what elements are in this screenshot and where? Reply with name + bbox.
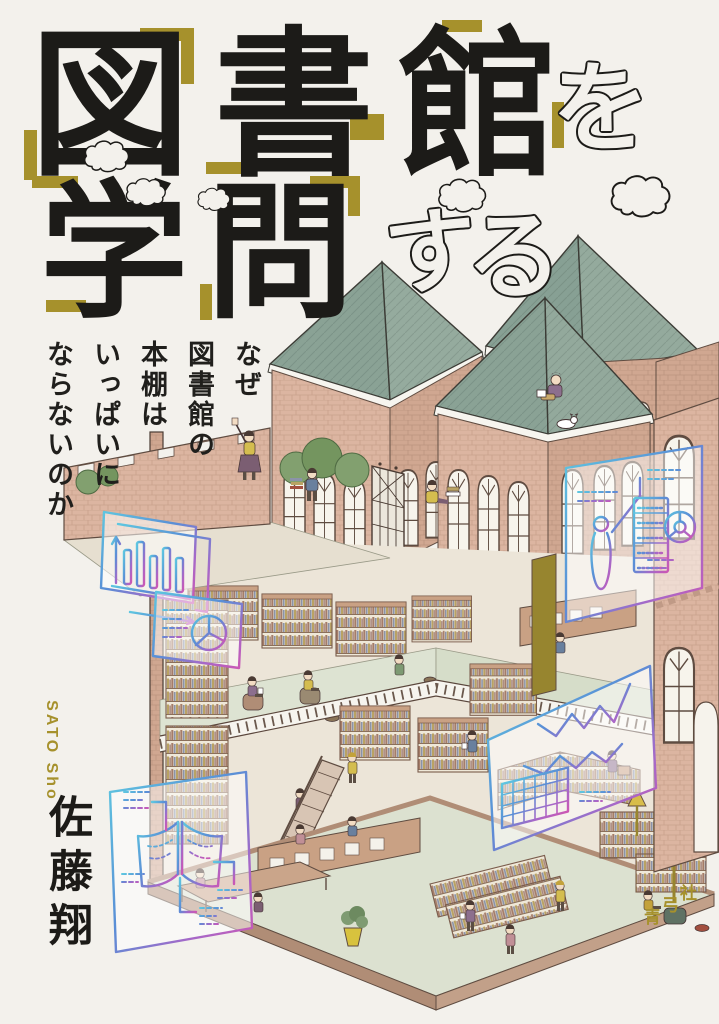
title-char: 書 [214,16,374,195]
arched-opening [694,702,718,852]
person-figure [395,654,404,675]
publisher-char: 社 [680,879,697,904]
title-line1: 図 書 館 [30,26,558,186]
subtitle-line: いっぱいに [81,340,128,560]
olive-pillar [532,554,556,696]
side-table [695,925,709,932]
title-line2: 学 問 [40,180,354,328]
subtitle: なぜ 図書館の 本棚は いっぱいに ならないのか [34,340,269,560]
title-char: 館 [398,16,558,195]
person-figure [556,632,565,653]
title-char-mon: 問 [206,180,354,328]
subtitle-line: ならないのか [34,340,81,560]
author-name: 佐藤翔 [34,794,98,956]
title-char-sho: 書 [214,26,374,186]
publisher-char: 青 [644,903,661,928]
title-char-kan: 館 [398,26,558,186]
open-book-panel [110,772,252,952]
person-figure [348,816,357,836]
subtitle-line: なぜ [222,340,269,560]
title-char: 問 [206,171,354,336]
facade-right [654,342,719,872]
title-char: 学 [40,171,188,336]
person-figure [296,824,305,844]
title-char: 図 [30,16,190,195]
publisher-char: 弓 [662,891,679,916]
pie-chart-panel [153,592,242,668]
title-char-zu: 図 [30,26,190,186]
title-char-gaku: 学 [40,180,188,328]
iron-gate [372,462,404,556]
subtitle-line: 本棚は [128,340,175,560]
book-cover: 図 書 館 学 問 を す る なぜ 図書館 [0,0,719,1024]
subtitle-line: 図書館の [175,340,222,560]
person-figure [254,892,263,912]
